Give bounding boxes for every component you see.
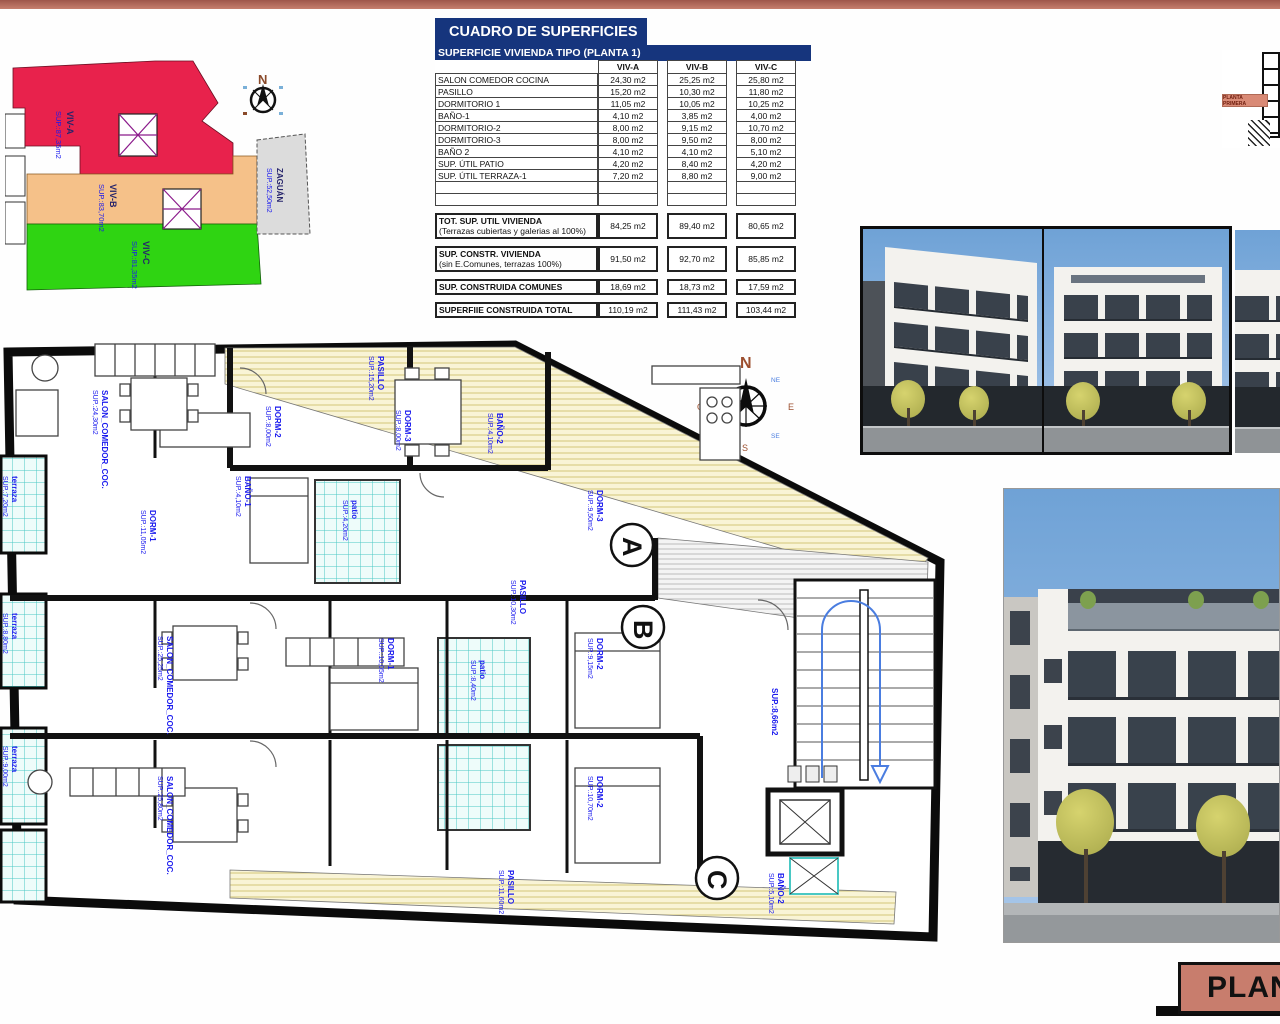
row-value <box>667 193 727 206</box>
summary-value: 110,19 m2 <box>598 302 658 318</box>
summary-value: 103,44 m2 <box>736 302 796 318</box>
svg-text:SUP.:8,00m2: SUP.:8,00m2 <box>264 406 271 447</box>
svg-text:SUP.:8,40m2: SUP.:8,40m2 <box>469 660 476 701</box>
page-top-border <box>0 0 1280 9</box>
svg-text:VIV-C: VIV-C <box>141 241 151 265</box>
svg-text:B: B <box>628 620 658 640</box>
site-plan: VIV-A SUP.:87,35m2 VIV-B SUP.:83,70m2 VI… <box>5 56 317 294</box>
summary-value: 84,25 m2 <box>598 213 658 239</box>
staircase <box>795 580 935 788</box>
svg-text:SUP.:15,20m2: SUP.:15,20m2 <box>367 356 374 401</box>
roof-terrace-rail <box>1071 275 1205 283</box>
summary-row: SUP. CONSTR. VIVIENDA(sin E.Comunes, ter… <box>435 246 811 272</box>
svg-text:N: N <box>258 72 267 87</box>
svg-text:SUP.:87,35m2: SUP.:87,35m2 <box>54 111 63 159</box>
svg-text:SALON_COMEDOR_COC.: SALON_COMEDOR_COC. <box>100 390 109 489</box>
svg-text:terraza: terraza <box>10 476 19 503</box>
svg-text:SUP.:7,20m2: SUP.:7,20m2 <box>1 476 8 517</box>
svg-text:SUP.:10,30m2: SUP.:10,30m2 <box>509 580 516 625</box>
svg-text:BAÑO-2: BAÑO-2 <box>495 413 504 444</box>
svg-text:DORM-1: DORM-1 <box>386 638 395 670</box>
svg-text:SUP.:5,10m2: SUP.:5,10m2 <box>767 873 774 914</box>
svg-text:SUP.:10,05m2: SUP.:10,05m2 <box>377 638 384 683</box>
balcony-band <box>1068 651 1280 700</box>
svg-text:SUP.:8,00m2: SUP.:8,00m2 <box>394 410 401 451</box>
svg-text:DORM-2: DORM-2 <box>273 406 282 438</box>
side-window <box>1044 725 1062 749</box>
site-neighbor-buildings <box>5 114 25 244</box>
balcony-band <box>1068 717 1280 766</box>
table-subtitle: SUPERFICIE VIVIENDA TIPO (PLANTA 1) <box>435 45 811 61</box>
table-body: SALON COMEDOR COCINA24,30 m225,25 m225,8… <box>435 73 811 206</box>
svg-text:PASILLO: PASILLO <box>506 870 515 904</box>
room-label: SUP.:8,66m2 <box>770 688 779 736</box>
table-empty-row <box>435 193 811 206</box>
table-summary: TOT. SUP. UTIL VIVIENDA(Terrazas cubiert… <box>435 213 811 318</box>
svg-text:BAÑO-1: BAÑO-1 <box>243 476 252 507</box>
summary-value: 18,69 m2 <box>598 279 658 295</box>
svg-text:terraza: terraza <box>10 613 19 640</box>
svg-text:VIV-A: VIV-A <box>65 111 75 135</box>
table-header-row: VIV-A VIV-B VIV-C <box>435 60 811 74</box>
svg-text:SUP.:25,80m2: SUP.:25,80m2 <box>156 776 163 821</box>
roofline <box>1068 589 1280 603</box>
summary-value: 17,59 m2 <box>736 279 796 295</box>
svg-text:PASILLO: PASILLO <box>518 580 527 614</box>
svg-text:SUP.:4,10m2: SUP.:4,10m2 <box>234 476 241 517</box>
svg-text:SALON_COMEDOR_COC.: SALON_COMEDOR_COC. <box>165 776 174 875</box>
svg-text:SUP.:9,15m2: SUP.:9,15m2 <box>586 638 593 679</box>
planta-primera-tag: PLANTA PRIMERA <box>1222 94 1268 107</box>
shower <box>790 858 838 894</box>
svg-text:SUP.:24,30m2: SUP.:24,30m2 <box>91 390 98 435</box>
svg-text:SUP.:8,66m2: SUP.:8,66m2 <box>770 688 779 736</box>
sidewalk <box>1004 903 1280 915</box>
meter-cabinets <box>788 766 837 782</box>
svg-text:BAÑO-2: BAÑO-2 <box>776 873 785 904</box>
svg-text:ZAGUÁN: ZAGUÁN <box>275 168 284 202</box>
summary-row: SUPERFIIE CONSTRUIDA TOTAL110,19 m2111,4… <box>435 302 811 318</box>
svg-text:DORM-2: DORM-2 <box>595 638 604 670</box>
svg-text:C: C <box>702 870 732 890</box>
svg-text:terraza: terraza <box>10 746 19 773</box>
col-viv-c: VIV-C <box>736 60 796 74</box>
section-elevation: PLANTA PRIMERA <box>1222 50 1280 148</box>
svg-text:DORM-3: DORM-3 <box>595 490 604 522</box>
svg-text:VIV-B: VIV-B <box>108 184 118 208</box>
svg-text:patio: patio <box>350 500 359 519</box>
svg-text:SUP.:81,35m2: SUP.:81,35m2 <box>130 241 139 289</box>
surfaces-table: CUADRO DE SUPERFICIES SUPERFICIE VIVIEND… <box>435 18 811 318</box>
rendering-large <box>1003 488 1280 943</box>
svg-text:SUP.:4,20m2: SUP.:4,20m2 <box>341 500 348 541</box>
svg-text:DORM-1: DORM-1 <box>148 510 157 542</box>
svg-text:SUP.:83,70m2: SUP.:83,70m2 <box>97 184 106 232</box>
row-value <box>736 193 796 206</box>
elevator <box>768 790 842 854</box>
floor-plan: A B C PASILLOSUP.:15,20m2SALON_COMEDOR_C… <box>0 338 945 958</box>
ground-hatch <box>1248 120 1270 146</box>
table-title: CUADRO DE SUPERFICIES <box>435 18 647 45</box>
summary-value: 80,65 m2 <box>736 213 796 239</box>
svg-text:SUP.:4,10m2: SUP.:4,10m2 <box>486 413 493 454</box>
rendering-partial <box>1235 230 1280 453</box>
road <box>1004 915 1280 943</box>
sheet-title: PLANTA <box>1178 962 1280 1014</box>
summary-row: TOT. SUP. UTIL VIVIENDA(Terrazas cubiert… <box>435 213 811 239</box>
summary-value: 18,73 m2 <box>667 279 727 295</box>
site-compass-icon: N <box>243 72 283 115</box>
summary-value: 89,40 m2 <box>667 213 727 239</box>
tree <box>1056 789 1114 855</box>
svg-text:SUP.:8,80m2: SUP.:8,80m2 <box>1 613 8 654</box>
tree <box>1196 795 1250 857</box>
summary-value: 92,70 m2 <box>667 246 727 272</box>
svg-text:patio: patio <box>478 660 487 679</box>
summary-value: 111,43 m2 <box>667 302 727 318</box>
svg-text:SALON_COMEDOR_COC.: SALON_COMEDOR_COC. <box>165 636 174 735</box>
sheet-title-label: PLANTA <box>1207 971 1280 1005</box>
rendering-front <box>1044 229 1229 452</box>
summary-value: 91,50 m2 <box>598 246 658 272</box>
summary-row: SUP. CONSTRUIDA COMUNES18,69 m218,73 m21… <box>435 279 811 295</box>
col-viv-a: VIV-A <box>598 60 658 74</box>
svg-text:SUP.:25,25m2: SUP.:25,25m2 <box>156 636 163 681</box>
svg-text:SUP.:9,50m2: SUP.:9,50m2 <box>586 490 593 531</box>
svg-text:SUP.:11,60m2: SUP.:11,60m2 <box>497 870 504 914</box>
svg-text:DORM-2: DORM-2 <box>595 776 604 808</box>
terraces <box>1 456 46 902</box>
svg-text:A: A <box>617 537 647 557</box>
row-name <box>435 193 598 206</box>
roof-terrace <box>1068 603 1280 631</box>
svg-text:SUP.:10,70m2: SUP.:10,70m2 <box>586 776 593 821</box>
svg-text:SUP.:52,50m2: SUP.:52,50m2 <box>265 168 272 213</box>
col-viv-b: VIV-B <box>667 60 727 74</box>
svg-text:PASILLO: PASILLO <box>376 356 385 390</box>
side-window <box>1044 659 1062 683</box>
svg-text:SUP.:9,00m2: SUP.:9,00m2 <box>1 746 8 787</box>
neighbor-building <box>1004 597 1038 897</box>
summary-value: 85,85 m2 <box>736 246 796 272</box>
svg-text:DORM-3: DORM-3 <box>403 410 412 442</box>
svg-text:SUP.:11,05m2: SUP.:11,05m2 <box>139 510 146 554</box>
row-value <box>598 193 658 206</box>
